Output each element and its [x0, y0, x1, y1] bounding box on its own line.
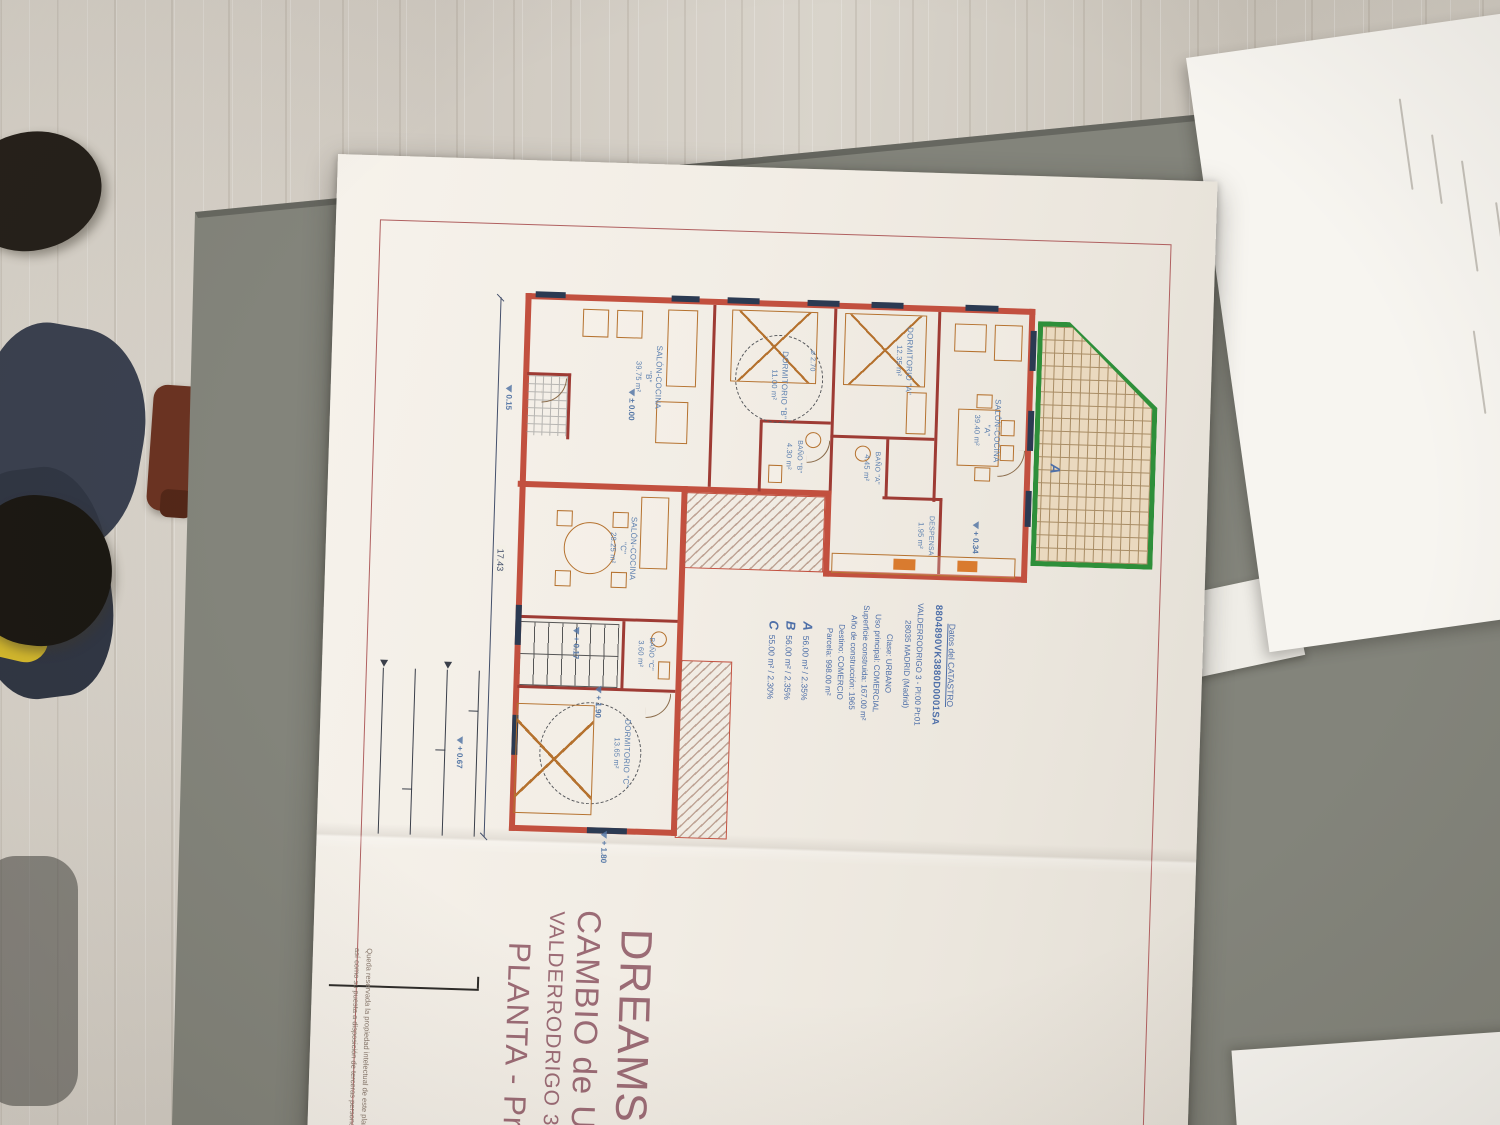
room-label: DESPENSA1.95 m² [915, 501, 935, 570]
armchair [582, 309, 609, 338]
armchair [616, 310, 643, 339]
wall [932, 312, 941, 502]
sofa [666, 309, 698, 387]
wall [620, 621, 625, 689]
level-marker: 0.15 [504, 384, 514, 410]
room-label: DORMITORIO "B"11.00 m² [768, 349, 790, 422]
kitchen-hob [893, 559, 915, 571]
level-marker: + 0.17 [571, 627, 581, 660]
window [1027, 411, 1034, 451]
window [728, 297, 760, 304]
window [807, 300, 839, 307]
wall [829, 309, 838, 491]
sofa [639, 497, 669, 570]
room-label: BAÑO "B"4.30 m² [784, 425, 804, 488]
wall [758, 419, 763, 491]
catastro-block: Datos del CATASTRO 8804890VK3880D0001SA … [763, 571, 959, 755]
level-marker: + 1.90 [593, 685, 603, 718]
chair [974, 467, 990, 481]
sink [768, 465, 783, 483]
photo-of-floor-plan-on-desk: A [0, 0, 1500, 1125]
room-label: BAÑO "C"3.60 m² [635, 623, 655, 686]
plan-document: A [301, 154, 1218, 1125]
room-label: DORMITORIO "A"12.35 m² [893, 325, 915, 398]
chair [556, 510, 572, 526]
unit-a-tag: A [1047, 463, 1063, 474]
chair [555, 570, 571, 586]
copyright-disclaimer: Queda reservada la propiedad intelectual… [338, 948, 375, 1125]
faint-text-line [1461, 160, 1479, 271]
window [1025, 491, 1032, 527]
bed [513, 703, 594, 815]
wardrobe [905, 392, 926, 435]
wall [708, 305, 717, 487]
patio-hatch [675, 660, 733, 840]
room-label: DORMITORIO "C"13.65 m² [611, 708, 633, 799]
brand-title: DREAMS [605, 928, 661, 1124]
level-marker: ± 0.00 [627, 388, 637, 420]
faint-text-line [1431, 134, 1443, 204]
faint-text-line [1495, 202, 1500, 266]
circle-diameter-note: ⌀ 2.70 [806, 336, 816, 386]
wall [882, 496, 942, 501]
faint-text-line [1399, 99, 1414, 190]
door-arc [645, 693, 671, 719]
chair [1000, 420, 1014, 436]
window [672, 296, 700, 303]
chair [1000, 445, 1014, 461]
catastro-reference: 8804890VK3880D0001SA [928, 576, 945, 754]
floor-shadow [0, 856, 78, 1106]
wall [884, 439, 889, 499]
room-label: SALÓN-COCINA "B"39.75 m² [633, 340, 665, 413]
window [536, 291, 566, 298]
kitchen-sink [957, 561, 977, 573]
sheet-name: PLANTA - Pro [495, 942, 537, 1125]
room-label: SALÓN-COCINA "C"28.25 m² [607, 510, 639, 587]
wall [830, 435, 934, 441]
room-label: BAÑO "A"4.45 m² [861, 442, 881, 495]
armchair [954, 323, 987, 352]
level-marker: + 0.34 [971, 521, 981, 554]
level-marker: + 1.80 [599, 831, 609, 864]
window [1030, 331, 1037, 371]
plan-sheet: A [301, 154, 1218, 1125]
faint-text-line [1473, 330, 1487, 413]
stairs [519, 621, 619, 688]
bed [843, 313, 927, 388]
patio-hatch [683, 492, 825, 572]
armchair [994, 325, 1023, 362]
dimension-value: 17.43 [495, 546, 506, 575]
sink [658, 661, 671, 679]
window [871, 302, 903, 309]
exterior-railing [375, 668, 480, 837]
window [965, 305, 998, 312]
room-label: SALÓN-COCINA "A"39.40 m² [971, 394, 1003, 467]
